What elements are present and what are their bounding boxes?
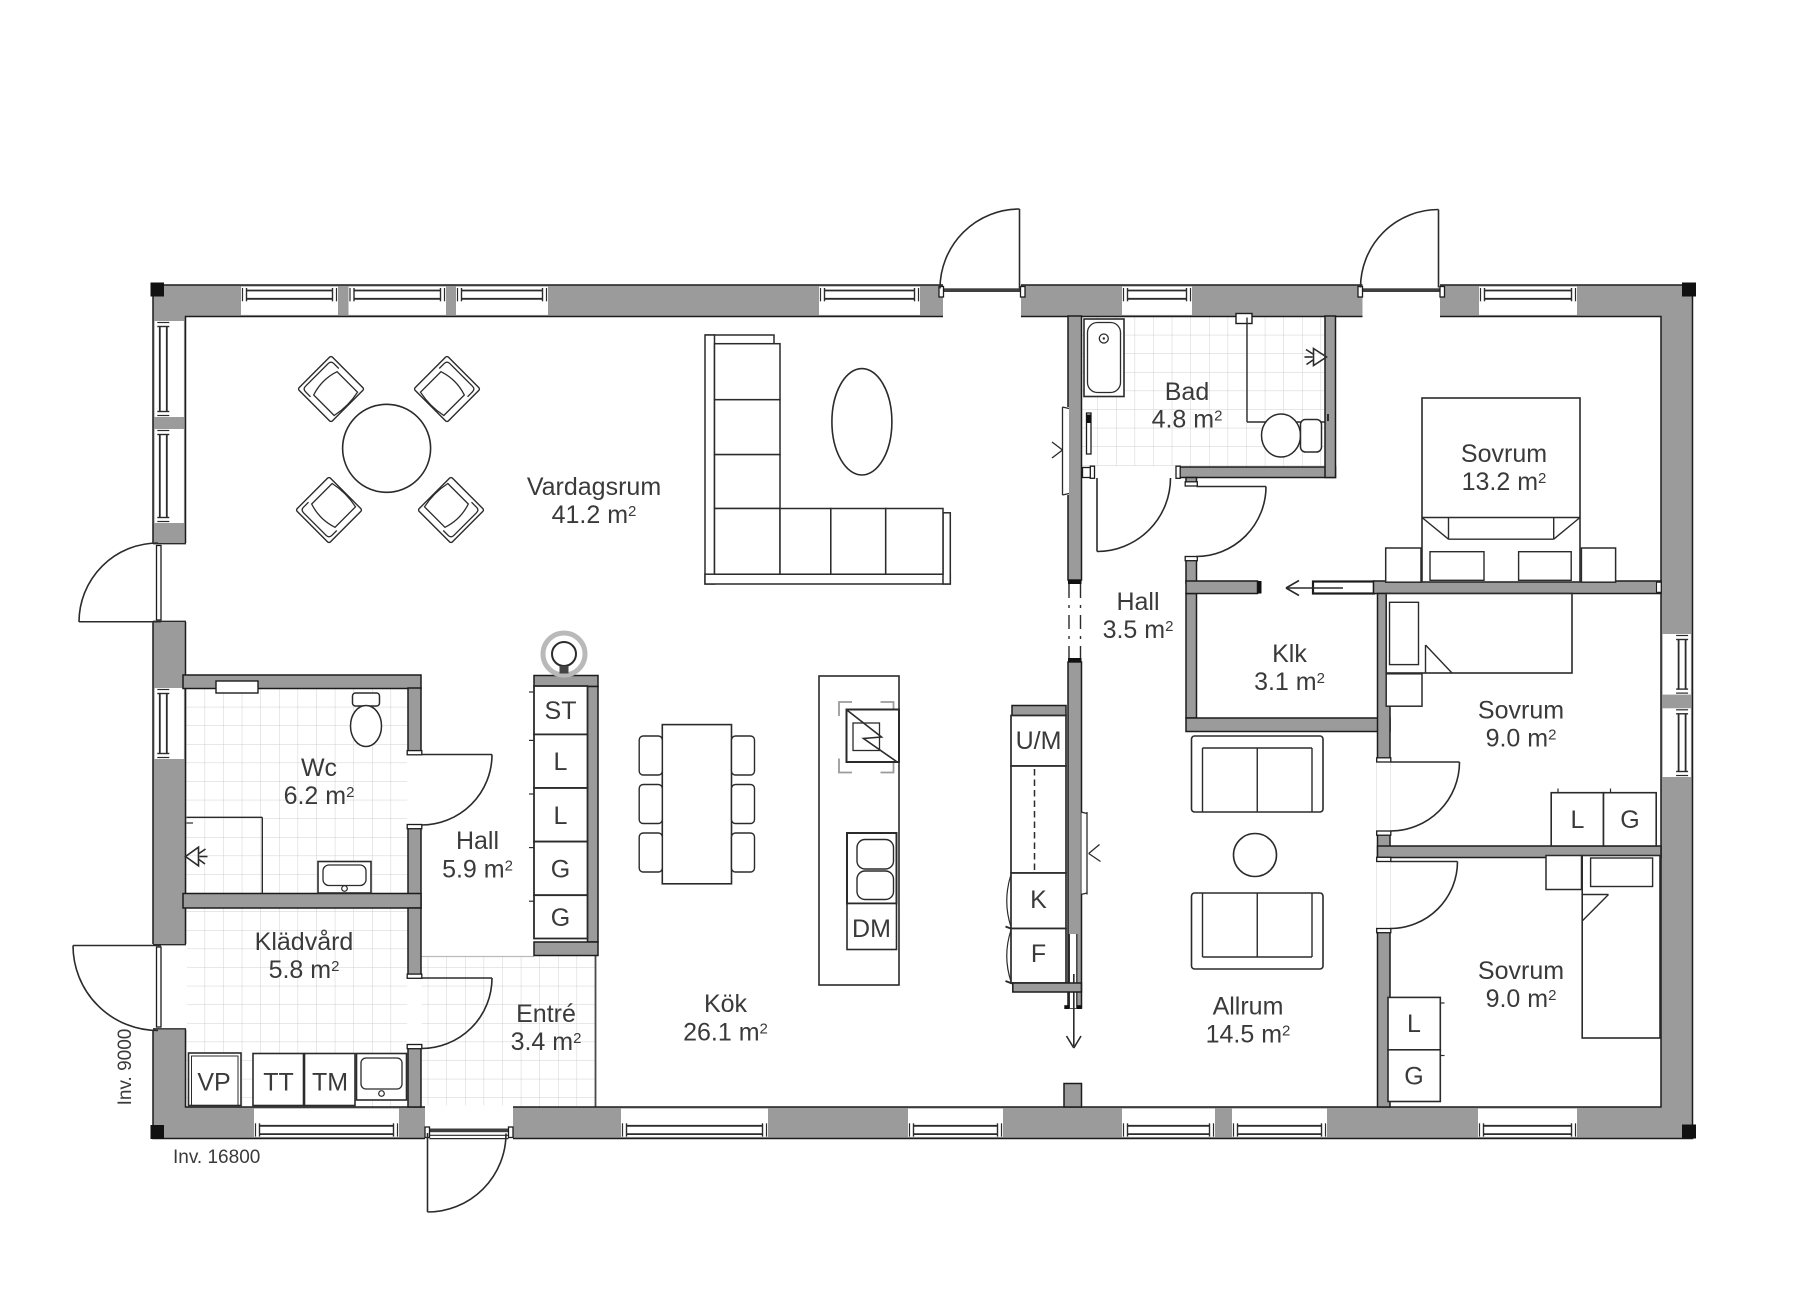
svg-text:Klk: Klk (1272, 640, 1307, 668)
svg-text:41.2 m2: 41.2 m2 (552, 501, 637, 529)
svg-text:3.5 m2: 3.5 m2 (1103, 616, 1174, 644)
svg-text:Sovrum: Sovrum (1478, 957, 1564, 985)
svg-text:K: K (1030, 886, 1047, 914)
svg-text:Klädvård: Klädvård (255, 928, 354, 956)
svg-text:Kök: Kök (704, 990, 748, 1018)
svg-text:F: F (1031, 940, 1046, 968)
svg-text:U/M: U/M (1016, 727, 1062, 755)
svg-text:L: L (1407, 1010, 1421, 1038)
svg-text:VP: VP (197, 1069, 230, 1097)
svg-text:Hall: Hall (1116, 588, 1159, 616)
svg-text:9.0 m2: 9.0 m2 (1486, 724, 1557, 752)
svg-text:Wc: Wc (301, 754, 337, 782)
svg-text:26.1 m2: 26.1 m2 (683, 1019, 768, 1047)
svg-text:Hall: Hall (456, 827, 499, 855)
svg-text:Entré: Entré (516, 1000, 576, 1028)
svg-text:L: L (1571, 806, 1585, 834)
svg-text:3.1 m2: 3.1 m2 (1254, 668, 1325, 696)
svg-text:G: G (551, 855, 570, 883)
svg-text:TM: TM (312, 1069, 348, 1097)
svg-text:5.8 m2: 5.8 m2 (269, 956, 340, 984)
svg-text:9.0 m2: 9.0 m2 (1486, 985, 1557, 1013)
svg-text:4.8 m2: 4.8 m2 (1152, 406, 1223, 434)
svg-text:Inv. 9000: Inv. 9000 (115, 1029, 136, 1106)
svg-text:13.2 m2: 13.2 m2 (1462, 468, 1547, 496)
svg-text:6.2 m2: 6.2 m2 (284, 782, 355, 810)
svg-text:TT: TT (263, 1069, 294, 1097)
svg-text:G: G (1404, 1063, 1423, 1091)
svg-text:ST: ST (545, 697, 577, 725)
svg-text:Vardagsrum: Vardagsrum (527, 473, 661, 501)
svg-text:3.4 m2: 3.4 m2 (511, 1028, 582, 1056)
svg-text:L: L (554, 748, 568, 776)
svg-text:DM: DM (852, 915, 891, 943)
svg-text:G: G (551, 904, 570, 932)
svg-text:Bad: Bad (1165, 378, 1209, 406)
svg-text:5.9 m2: 5.9 m2 (442, 856, 513, 884)
svg-text:Inv. 16800: Inv. 16800 (173, 1147, 260, 1168)
svg-text:14.5 m2: 14.5 m2 (1206, 1021, 1291, 1049)
svg-text:G: G (1620, 806, 1639, 834)
svg-text:L: L (554, 802, 568, 830)
svg-text:Sovrum: Sovrum (1461, 440, 1547, 468)
svg-text:Allrum: Allrum (1213, 993, 1284, 1021)
svg-text:Sovrum: Sovrum (1478, 696, 1564, 724)
